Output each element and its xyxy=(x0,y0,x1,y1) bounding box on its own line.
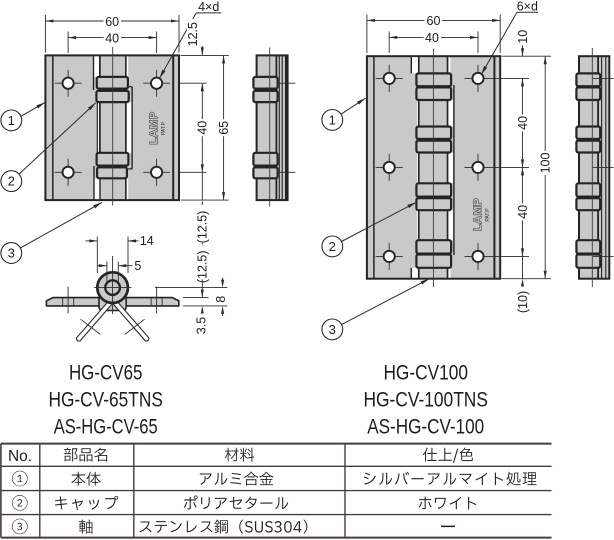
svg-text:40: 40 xyxy=(516,205,530,219)
svg-text:PAT.P: PAT.P xyxy=(485,208,491,222)
svg-text:65: 65 xyxy=(217,121,231,135)
svg-text:6×d: 6×d xyxy=(517,0,538,14)
svg-text:60: 60 xyxy=(427,14,441,28)
svg-text:14: 14 xyxy=(140,234,154,248)
svg-text:3.5: 3.5 xyxy=(195,317,209,334)
svg-text:40: 40 xyxy=(425,31,439,45)
svg-text:40: 40 xyxy=(105,31,119,45)
svg-text:HG-CV100: HG-CV100 xyxy=(383,360,468,384)
svg-text:4×d: 4×d xyxy=(198,0,219,14)
svg-text:No.: No. xyxy=(8,448,32,465)
svg-text:100: 100 xyxy=(539,153,553,174)
svg-text:60: 60 xyxy=(105,15,119,29)
svg-text:12.5: 12.5 xyxy=(186,22,200,46)
svg-text:10: 10 xyxy=(516,30,530,44)
svg-text:LAMP: LAMP xyxy=(472,198,484,231)
svg-text:LAMP: LAMP xyxy=(148,111,160,144)
svg-text:3: 3 xyxy=(329,322,336,337)
svg-text:(12.5): (12.5) xyxy=(196,250,210,283)
svg-text:HG-CV-100TNS: HG-CV-100TNS xyxy=(363,387,488,411)
svg-text:2: 2 xyxy=(329,239,336,254)
svg-text:(10): (10) xyxy=(516,291,530,313)
svg-text:3: 3 xyxy=(8,246,15,261)
svg-text:AS-HG-CV-100: AS-HG-CV-100 xyxy=(367,415,484,439)
svg-text:1: 1 xyxy=(329,113,336,128)
svg-text:PAT.P: PAT.P xyxy=(161,121,167,135)
svg-text:2: 2 xyxy=(8,174,15,189)
svg-text:8: 8 xyxy=(214,296,228,303)
svg-text:AS-HG-CV-65: AS-HG-CV-65 xyxy=(54,415,158,439)
svg-text:HG-CV-65TNS: HG-CV-65TNS xyxy=(48,387,163,411)
svg-text:HG-CV65: HG-CV65 xyxy=(69,360,143,384)
svg-text:5: 5 xyxy=(134,259,141,273)
svg-text:40: 40 xyxy=(516,116,530,130)
svg-text:1: 1 xyxy=(8,113,15,128)
svg-text:40: 40 xyxy=(196,121,210,135)
svg-text:(12.5): (12.5) xyxy=(196,211,210,244)
